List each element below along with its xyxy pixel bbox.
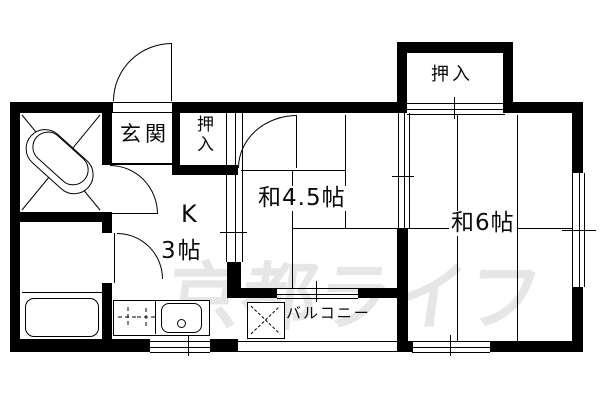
tick-fusuma-hall — [220, 232, 247, 233]
floor-plan: 京都ライフ — [0, 0, 600, 400]
wall-left-outer — [10, 102, 20, 352]
tick-fusuma-46 — [392, 176, 414, 177]
bathroom-door-arc — [110, 165, 158, 214]
wall-right-upper — [572, 102, 583, 173]
wall-genkan-bath — [102, 113, 112, 165]
kitchen-sink — [161, 303, 202, 333]
room-label-kitchen: K — [181, 202, 197, 226]
tick-kitchen-window — [188, 335, 189, 356]
tatami-line — [292, 228, 397, 229]
wall-right-lower — [572, 287, 583, 352]
wall-bottom-left — [10, 339, 150, 352]
kitchen-window — [150, 341, 210, 353]
room-label-washitsu-45: 和4.5帖 — [256, 186, 348, 211]
tatami-line — [241, 170, 345, 171]
room45-door-arc — [238, 115, 297, 168]
wall-room-divider-lower — [397, 228, 408, 352]
entrance-threshold-bottom — [113, 112, 172, 113]
wall-bottom-kitchen — [210, 339, 238, 352]
room-label-genkan: 玄関 — [120, 124, 170, 145]
wall-bath-toilet-divider — [20, 212, 112, 222]
tatami-line — [345, 115, 346, 228]
room45-balcony-window — [277, 288, 358, 299]
wall-top-left — [10, 102, 113, 113]
tick-balcony-window — [316, 281, 317, 302]
sink-drain-icon — [177, 319, 186, 328]
wall-hall-lower — [102, 283, 112, 340]
room6-south-window — [412, 341, 490, 353]
tick-closet-slider — [454, 97, 455, 119]
toilet-door-arc — [117, 233, 163, 279]
tick-room6-window — [450, 335, 451, 356]
room-label-balcony: バルコニー — [286, 306, 371, 321]
wall-closet-left — [397, 42, 407, 113]
entrance-door-arc — [113, 43, 172, 101]
wall-closet-top — [397, 42, 513, 53]
closet-sliding-door — [407, 103, 505, 115]
genkan-step-line — [112, 163, 172, 165]
balcony-railing — [238, 341, 397, 352]
line-toilet-laundry-divider — [22, 292, 102, 293]
wall-bottom-right — [490, 341, 583, 352]
room-size-kitchen: 3帖 — [161, 240, 203, 263]
gas-stove-icon — [113, 300, 157, 334]
bathtub-icon — [20, 113, 102, 212]
entrance-threshold-top — [113, 102, 172, 103]
room-label-closet-hall: 押入 — [194, 115, 211, 155]
laundry-pan — [25, 298, 99, 337]
room-label-closet-top: 押入 — [431, 66, 473, 84]
room-label-washitsu-6: 和6帖 — [449, 211, 517, 236]
water-heater-cross-icon — [247, 302, 285, 339]
tick-east-window — [562, 230, 596, 231]
wall-top-middle — [172, 102, 400, 113]
fusuma-room45-room6 — [398, 113, 410, 228]
wall-hallcloset-left — [172, 113, 180, 165]
toilet-door-leaf — [114, 233, 115, 283]
fusuma-hall-room45 — [226, 113, 243, 262]
wall-under-room45-left — [227, 288, 277, 298]
